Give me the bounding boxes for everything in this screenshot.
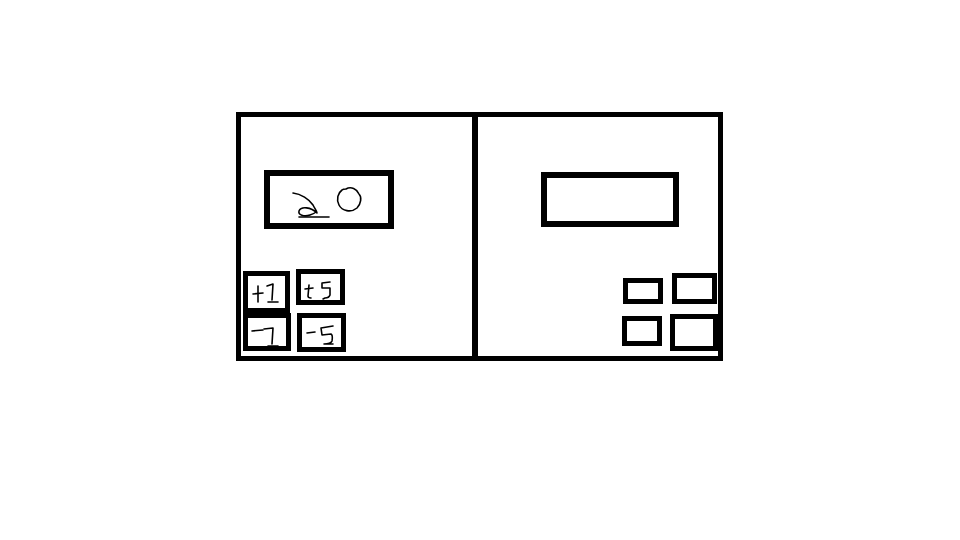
left-counter-display-value: 20 [270, 176, 271, 177]
right-counter-display-value [547, 178, 548, 179]
right-button-1-label [628, 283, 629, 284]
minus-one-button[interactable]: -1 [243, 313, 291, 351]
minus-five-button-label: -5 [302, 318, 303, 319]
left-counter-display: 20 [264, 170, 394, 229]
plus-five-button-label: +5 [301, 274, 302, 275]
right-button-2-label [677, 278, 678, 279]
right-button-2[interactable] [672, 273, 717, 304]
minus-five-button[interactable]: -5 [297, 313, 346, 352]
right-counter-display [541, 172, 679, 227]
right-button-1[interactable] [623, 278, 663, 304]
panel-divider [472, 117, 478, 356]
right-button-3[interactable] [622, 316, 662, 346]
minus-one-button-label: -1 [248, 318, 249, 319]
right-button-3-label [627, 321, 628, 322]
right-button-4-label [675, 319, 676, 320]
right-button-4[interactable] [670, 314, 718, 351]
plus-one-button-label: +1 [248, 276, 249, 277]
plus-one-button[interactable]: +1 [243, 271, 290, 313]
plus-five-button[interactable]: +5 [296, 269, 345, 305]
sketch-canvas: 20 +1 +5 -1 -5 [0, 0, 960, 540]
